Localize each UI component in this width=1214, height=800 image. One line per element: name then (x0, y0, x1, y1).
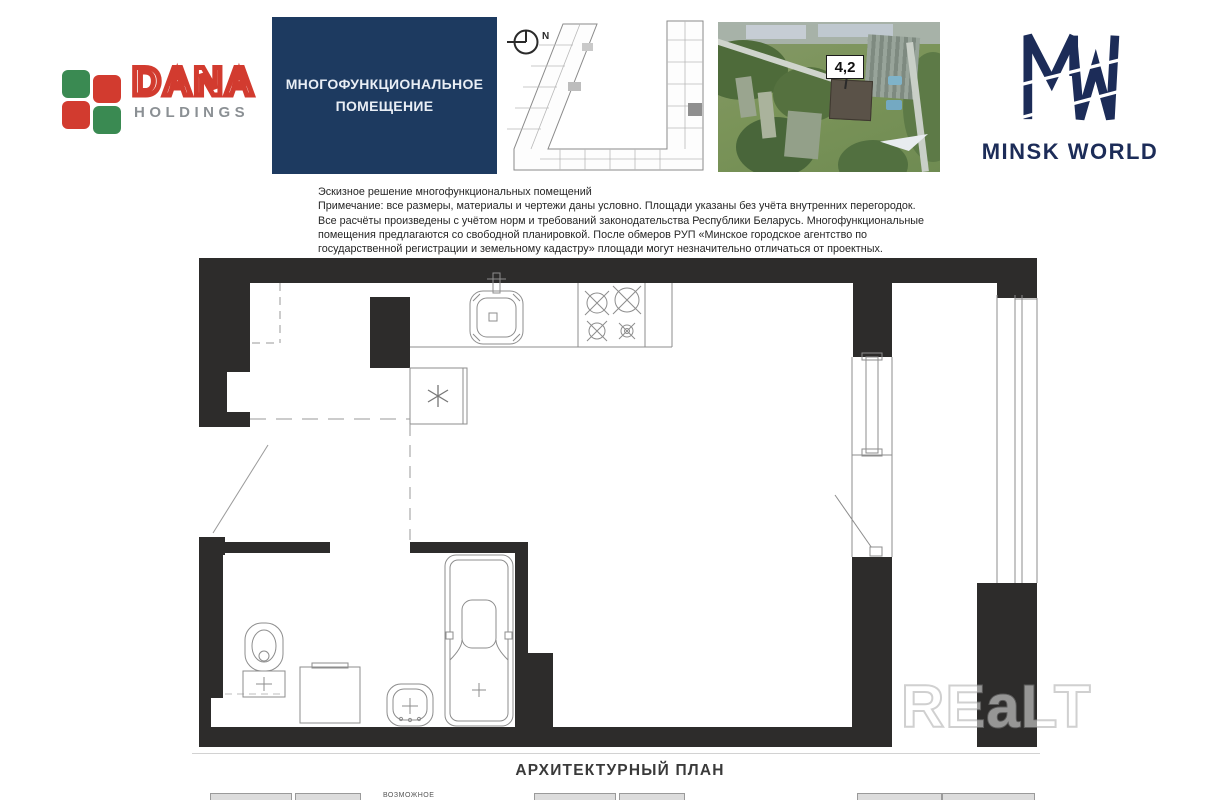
unit-type-line1: МНОГОФУНКЦИОНАЛЬНОЕ (286, 74, 484, 96)
bathtub (445, 555, 513, 726)
legend-note: ВОЗМОЖНОЕ (383, 792, 434, 799)
unit-type-line2: ПОМЕЩЕНИЕ (286, 96, 484, 118)
legend-swatch (534, 793, 616, 800)
highlighted-building (829, 79, 873, 121)
page: DANA HOLDINGS МНОГОФУНКЦИОНАЛЬНОЕ ПОМЕЩЕ… (0, 0, 1214, 800)
stove (585, 286, 641, 341)
disclaimer-line: Примечание: все размеры, материалы и чер… (318, 199, 928, 213)
washing-machine (300, 663, 360, 723)
dana-holdings-logo: DANA HOLDINGS (62, 66, 256, 132)
balcony-window (852, 353, 892, 557)
disclaimer-text: Эскизное решение многофункциональных пом… (318, 185, 928, 256)
mw-monogram-icon (1015, 28, 1125, 124)
dana-brand-text: DANA (132, 66, 256, 99)
aerial-photo: 4,2 (718, 22, 940, 172)
ventilation-shaft (370, 297, 410, 368)
appliance-spot (410, 368, 467, 424)
north-arrow-icon (507, 30, 538, 54)
unit-type-box: МНОГОФУНКЦИОНАЛЬНОЕ ПОМЕЩЕНИЕ (272, 17, 497, 174)
minsk-world-logo: MINSK WORLD (975, 28, 1165, 165)
legend-swatch (619, 793, 685, 800)
legend-swatch (857, 793, 942, 800)
legend-swatch (210, 793, 292, 800)
disclaimer-line: Все расчёты произведены с учётом норм и … (318, 214, 928, 228)
realt-watermark: REaLT (901, 672, 1092, 741)
kitchen-sink (470, 273, 523, 344)
plan-divider-line (192, 753, 1040, 754)
asterisk-marker-icon (428, 385, 448, 407)
entry-door (213, 445, 268, 533)
building-key-plan: N (500, 18, 715, 176)
plan-caption: АРХИТЕКТУРНЫЙ ПЛАН (195, 762, 1045, 780)
balcony-door (835, 495, 882, 556)
balcony-glazing (997, 295, 1037, 583)
disclaimer-line: Эскизное решение многофункциональных пом… (318, 185, 928, 199)
disclaimer-line: помещения предлагаются со свободной план… (318, 228, 928, 242)
building-footprint (507, 21, 703, 170)
north-label: N (542, 31, 549, 42)
building-number-badge: 4,2 (826, 55, 864, 79)
wash-basin (387, 684, 433, 726)
minsk-world-name: MINSK WORLD (975, 139, 1165, 165)
dana-squares-icon (62, 66, 126, 132)
legend-swatch (942, 793, 1035, 800)
legend-swatch (295, 793, 361, 800)
highlighted-unit (688, 103, 702, 116)
dana-subtitle-text: HOLDINGS (134, 104, 256, 121)
toilet (243, 623, 285, 697)
